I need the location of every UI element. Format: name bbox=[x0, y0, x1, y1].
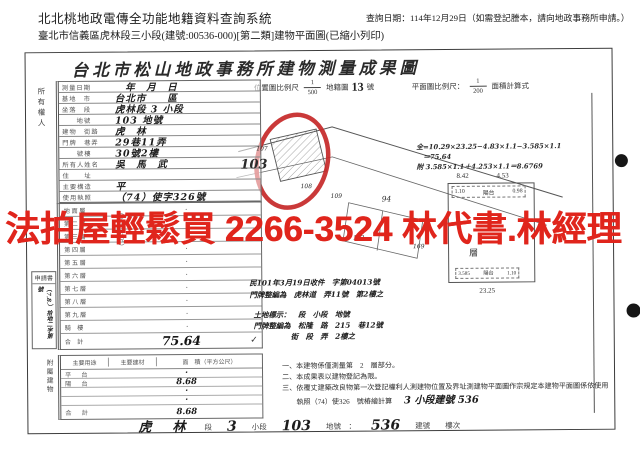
calc-line: 全=10.29×23.25−4.83×1.1−3.585×1.1 bbox=[416, 141, 561, 152]
subject-building-hatched bbox=[270, 129, 326, 181]
footer-building-no-hw: 536 bbox=[371, 417, 400, 433]
plan-dimension: 8.42 bbox=[456, 172, 468, 180]
sketch-label: 108 bbox=[301, 183, 313, 190]
floor-total-label: 合 計 bbox=[61, 337, 113, 346]
annex-row-label: 陽 台 bbox=[61, 378, 111, 387]
application-stamp-box: 申請書 （7.8.）拾地二字第 號 bbox=[31, 271, 57, 349]
floor-total-value: 75.64 bbox=[113, 333, 251, 349]
plan-balcony-label: 陽台 bbox=[483, 270, 493, 277]
form-row-label: 地號 bbox=[59, 115, 115, 124]
footer-subsection-label: 小段 bbox=[252, 421, 267, 434]
location-scale-fraction: 1 500 bbox=[304, 79, 321, 96]
annex-row-label: 平 台 bbox=[61, 369, 111, 378]
watermark-ad: 法拍屋輕鬆買 2266-3524 林代書.林經理 bbox=[5, 201, 639, 252]
plan-bottom-balcony: 3.585 陽台 1.10 bbox=[455, 267, 519, 279]
plan-scale-fraction: 1 200 bbox=[469, 78, 486, 95]
form-row-label: 建物 街路 bbox=[59, 126, 115, 135]
form-row-label: 所有人姓名 bbox=[59, 159, 115, 168]
hw-note-line: 門牌整編為 松隆 路 215 巷12號 bbox=[254, 320, 383, 332]
floor-row-value: · bbox=[112, 295, 261, 305]
form-row-label: 測量日期 bbox=[59, 82, 115, 91]
plan-dimension: 23.25 bbox=[479, 287, 495, 295]
footer-parcel-line: 虎 林 段 3 小段 103 地號 ： 536 建號 樓次 bbox=[138, 414, 460, 436]
remark-handwritten: 3 小段建號 536 bbox=[404, 395, 479, 407]
system-title: 北北桃地政電傳全功能地籍資料查詢系統 bbox=[38, 8, 272, 27]
area-calc-label: 面積計算式 bbox=[491, 80, 529, 91]
plan-dimension: 3.585 bbox=[458, 270, 470, 276]
footer-building-no-label: 建號 bbox=[415, 420, 430, 433]
ink-dot-icon bbox=[615, 154, 628, 167]
floor-row-label: 第 七 層 bbox=[60, 283, 112, 292]
floor-row-value: · bbox=[112, 282, 261, 292]
footer-subsection-hw: 3 bbox=[227, 419, 237, 435]
plan-balcony: 1.10 陽台 0.98 bbox=[452, 185, 526, 198]
form-row-label: 主要構造 bbox=[60, 181, 116, 190]
building-info-table: 測量日期 年 月 日 基地 市 台北市 區 坐落 段 虎林段 3 小段 地號 1… bbox=[56, 79, 262, 204]
doc-title: 台北市松山地政事務所建物測量成果圖 bbox=[72, 54, 421, 81]
floor-row-value: · bbox=[112, 256, 261, 266]
plan-balcony-label: 陽台 bbox=[483, 187, 495, 196]
hw-note-line: 民101年3月19日收件 字第04013號 bbox=[249, 277, 383, 290]
annex-header-use: 主要用途 bbox=[61, 358, 109, 367]
map-sheet-number: 13 bbox=[351, 80, 363, 95]
query-date: 查詢日期：114年12月29日（如需登記謄本，請向地政事務所申請。） bbox=[366, 11, 630, 24]
annex-side-label: 附屬建物 bbox=[43, 359, 53, 394]
floor-total-row: 合 計 75.64 ✓ bbox=[61, 332, 262, 349]
hw-note-line: 門牌整編為 虎林道 弄11號 第2樓之 bbox=[249, 288, 383, 301]
sketch-label-lot103: 103 bbox=[240, 157, 267, 172]
plan-dimension: 4.53 bbox=[496, 172, 508, 180]
annex-total-label: 合 計 bbox=[61, 408, 111, 417]
form-row-label: 坐落 段 bbox=[59, 104, 115, 113]
floor-row-value: · bbox=[113, 321, 262, 331]
calc-line: 附 3.585×1.1＋4.253×1.1＝8.6769 bbox=[416, 161, 561, 172]
floor-row-label: 第 九 層 bbox=[61, 309, 113, 318]
owner-column-label: 所有權人 bbox=[36, 87, 47, 129]
floor-row-label: 第 六 層 bbox=[60, 270, 112, 279]
document-subtitle: 臺北市信義區虎林段三小段(建號:00536-000)[第二類]建物平面圖(已縮小… bbox=[38, 27, 384, 42]
form-row-label: 號樓 bbox=[59, 148, 115, 157]
footer-lot-hw: 103 bbox=[282, 418, 311, 434]
plan-dimension: 0.98 bbox=[512, 188, 522, 194]
annex-row: · bbox=[61, 395, 262, 406]
annex-row-value: · bbox=[111, 394, 262, 405]
footer-section-hw: 虎 林 bbox=[138, 416, 189, 435]
plan-dimension: 1.10 bbox=[507, 270, 516, 276]
floor-row-label: 第 八 層 bbox=[60, 296, 112, 305]
form-row-label: 門牌 巷弄 bbox=[59, 137, 115, 146]
ink-dot-icon bbox=[627, 303, 640, 317]
handwritten-receipt-note: 民101年3月19日收件 字第04013號 門牌整編為 虎林道 弄11號 第2樓… bbox=[249, 277, 383, 302]
plan-dimension: 1.10 bbox=[455, 189, 465, 195]
remarks-list: 一、本建物係僅測量第 2 層部分。 二、本成果表以建物登記為限。 三、依覆丈建築… bbox=[282, 359, 622, 410]
location-scale: 位置圖比例尺 1 500 地籍圖 13 號 bbox=[254, 79, 374, 97]
area-calculation-notes: 全=10.29×23.25−4.83×1.1−3.585×1.1 ＝75.64 … bbox=[416, 141, 561, 173]
floor-row-label: 騎 樓 bbox=[61, 322, 113, 331]
plan-scale: 平面圖比例尺： 1 200 面積計算式 bbox=[412, 77, 529, 95]
screen: 北北桃地政電傳全功能地籍資料查詢系統 查詢日期：114年12月29日（如需登記謄… bbox=[0, 0, 640, 450]
plan-scale-label: 平面圖比例尺： bbox=[412, 81, 465, 92]
annex-header-material: 主要建材 bbox=[109, 357, 157, 366]
footer-lot-label: 地號 ： bbox=[326, 421, 356, 434]
sketch-label: 107 bbox=[256, 145, 268, 152]
map-sheet-unit: 號 bbox=[367, 82, 375, 93]
form-row-label: 基地 市 bbox=[59, 93, 115, 102]
footer-section-label: 段 bbox=[204, 422, 212, 435]
floor-row-value: · bbox=[113, 308, 262, 318]
application-stamp-number: （7.8.）拾地二字第 號 bbox=[35, 286, 53, 344]
footer-floor-label: 樓次 bbox=[445, 420, 460, 433]
hw-note-line: 街 段 弄 2樓之 bbox=[254, 331, 383, 343]
form-row-label: 住 址 bbox=[59, 170, 115, 179]
application-stamp-title: 申請書 bbox=[32, 272, 55, 284]
map-sheet-label: 地籍圖 bbox=[326, 82, 349, 93]
annex-header-area: 面 積（平方公尺） bbox=[157, 356, 262, 366]
sketch-label: 109 bbox=[331, 193, 343, 200]
floor-row-value: · bbox=[112, 269, 261, 279]
remark-text: 執照（74）使326 號樁繪計算 bbox=[282, 397, 392, 406]
handwritten-land-note: 土地標示： 段 小段 地號 門牌整編為 松隆 路 215 巷12號 街 段 弄 … bbox=[254, 309, 383, 343]
remark-line: 執照（74）使326 號樁繪計算 3 小段建號 536 bbox=[282, 392, 622, 410]
annex-building-table: 主要用途 主要建材 面 積（平方公尺） 平 台 · 陽 台 8.68 · bbox=[58, 353, 264, 420]
floor-row-label: 第 五 層 bbox=[60, 257, 112, 266]
